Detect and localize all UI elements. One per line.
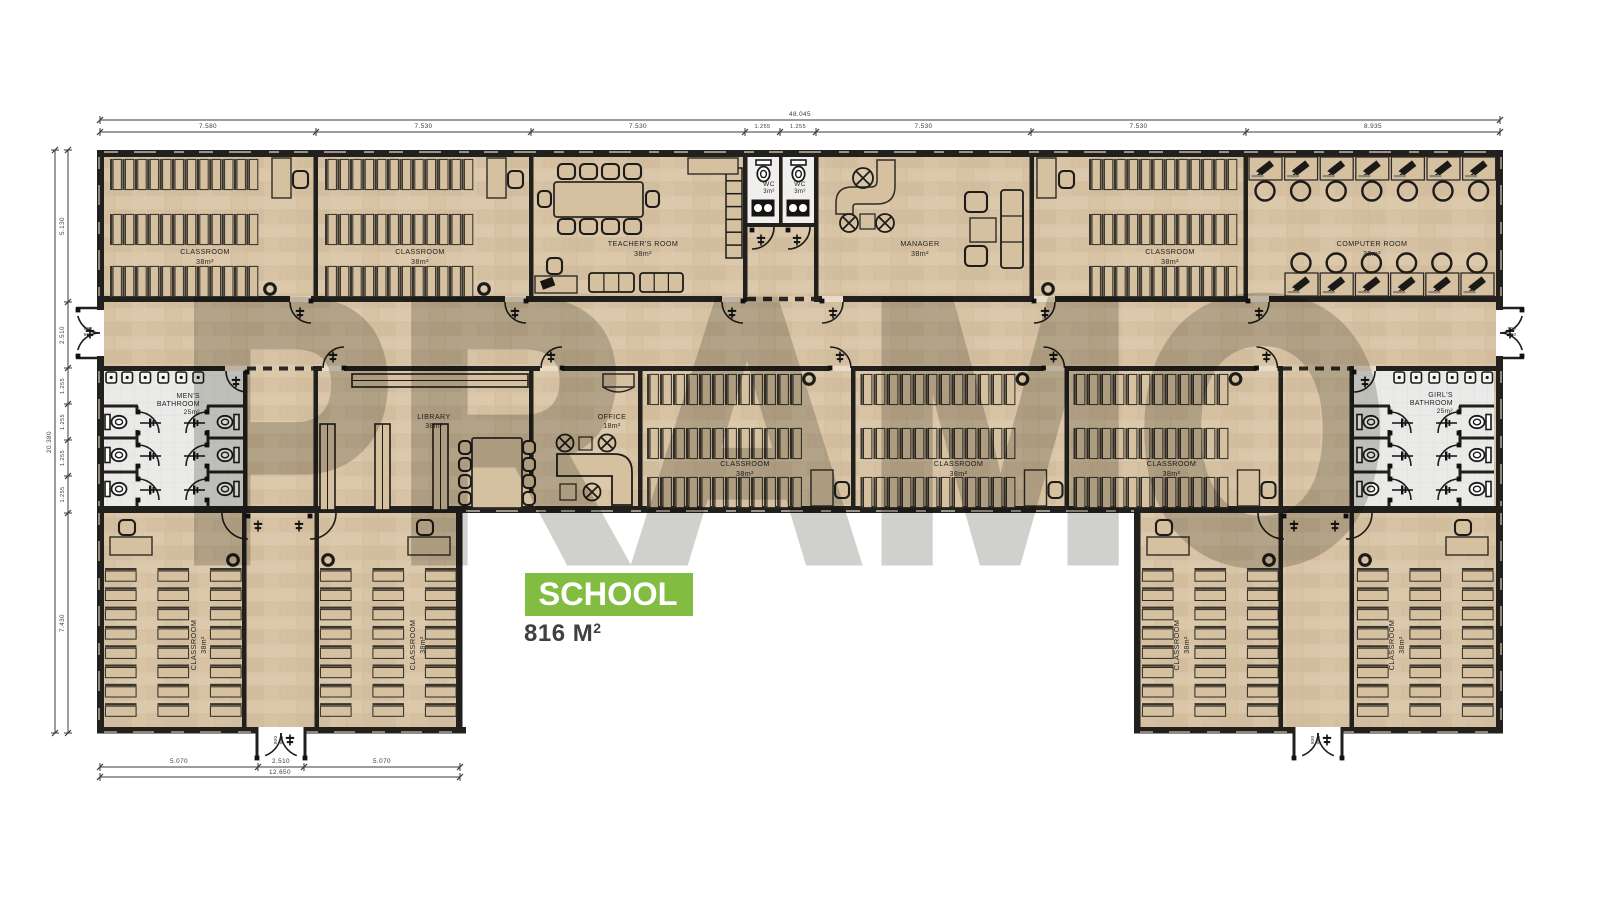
svg-text:SCHOOL: SCHOOL [539, 576, 678, 612]
svg-text:8.935: 8.935 [1364, 123, 1382, 130]
svg-text:PRAMO: PRAMO [177, 222, 1389, 640]
svg-text:900: 900 [1508, 326, 1517, 331]
svg-text:7.530: 7.530 [415, 123, 433, 130]
svg-text:900: 900 [1508, 332, 1517, 337]
svg-text:12.650: 12.650 [269, 769, 291, 776]
svg-text:25m²: 25m² [1437, 408, 1454, 415]
svg-text:900: 900 [84, 326, 93, 331]
svg-text:7.530: 7.530 [629, 123, 647, 130]
svg-text:3m²: 3m² [794, 189, 806, 195]
svg-text:2.510: 2.510 [272, 758, 290, 765]
svg-text:2.510: 2.510 [59, 326, 66, 344]
svg-text:7.530: 7.530 [915, 123, 933, 130]
svg-text:48.045: 48.045 [789, 111, 811, 118]
svg-text:900: 900 [279, 736, 284, 745]
svg-text:GIRL'S: GIRL'S [1428, 392, 1453, 399]
svg-text:1.255: 1.255 [755, 124, 771, 130]
svg-text:WC: WC [763, 181, 775, 188]
svg-text:816 M2: 816 M2 [524, 620, 602, 647]
svg-text:900: 900 [1316, 736, 1321, 745]
svg-text:900: 900 [273, 736, 278, 745]
svg-text:5.070: 5.070 [170, 758, 188, 765]
svg-text:5.130: 5.130 [59, 217, 66, 235]
svg-text:1.255: 1.255 [60, 378, 66, 394]
svg-text:38m²: 38m² [1399, 636, 1406, 654]
svg-text:20.380: 20.380 [46, 431, 53, 453]
svg-text:1.255: 1.255 [60, 414, 66, 430]
svg-text:1.255: 1.255 [60, 450, 66, 466]
svg-text:900: 900 [84, 332, 93, 337]
svg-text:5.070: 5.070 [373, 758, 391, 765]
svg-text:3m²: 3m² [763, 189, 775, 195]
svg-text:7.580: 7.580 [199, 123, 217, 130]
svg-text:7.530: 7.530 [1130, 123, 1148, 130]
svg-text:BATHROOM: BATHROOM [1410, 400, 1453, 407]
svg-text:900: 900 [1310, 736, 1315, 745]
svg-text:7.430: 7.430 [59, 614, 66, 632]
svg-text:WC: WC [794, 181, 806, 188]
svg-text:1.255: 1.255 [60, 487, 66, 503]
svg-text:1.255: 1.255 [790, 124, 806, 130]
